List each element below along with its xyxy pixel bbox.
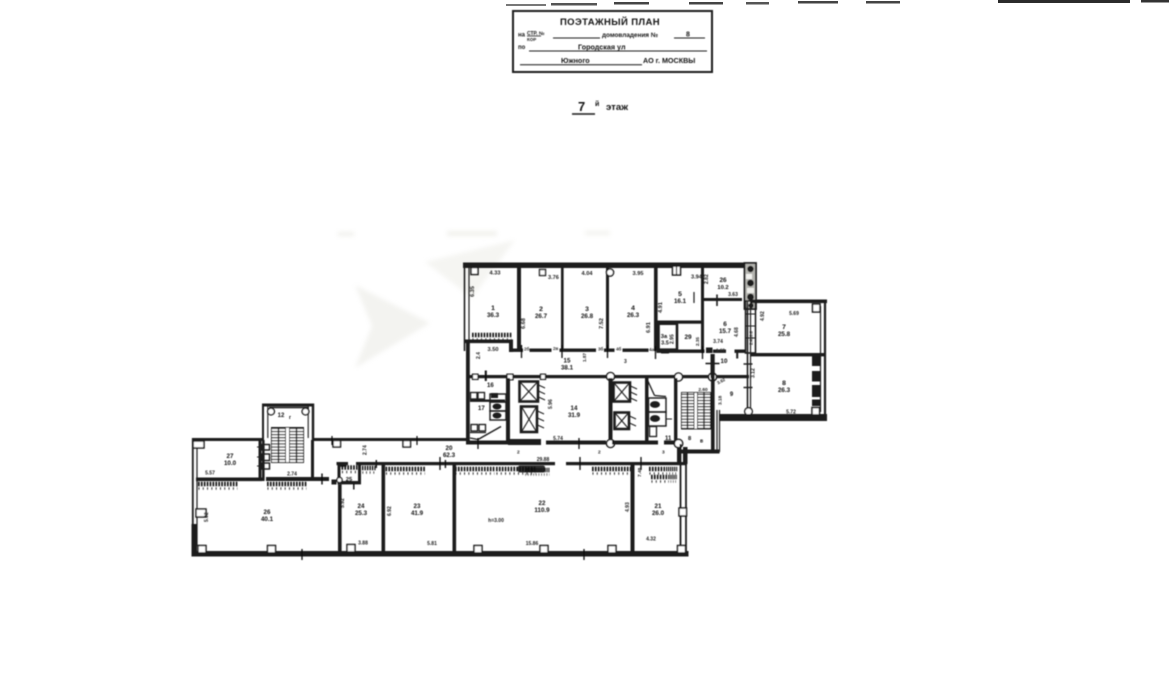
svg-text:29: 29 — [684, 334, 692, 341]
svg-text:4.68: 4.68 — [734, 327, 740, 337]
svg-text:3: 3 — [662, 450, 665, 456]
svg-text:1.87: 1.87 — [582, 353, 587, 362]
svg-text:10.0: 10.0 — [224, 460, 237, 467]
svg-text:6.91: 6.91 — [646, 322, 652, 333]
svg-text:7: 7 — [782, 324, 786, 331]
svg-text:4.32: 4.32 — [646, 537, 656, 543]
svg-text:26: 26 — [264, 509, 271, 516]
svg-text:Городская ул: Городская ул — [578, 43, 626, 52]
svg-text:2.74: 2.74 — [287, 472, 297, 478]
svg-text:г: г — [289, 415, 291, 421]
svg-text:в: в — [700, 439, 703, 445]
svg-text:h=3.00: h=3.00 — [488, 518, 504, 524]
svg-text:2: 2 — [539, 306, 543, 313]
svg-text:3.74: 3.74 — [713, 339, 723, 345]
svg-text:16: 16 — [487, 383, 494, 389]
svg-text:62.3: 62.3 — [443, 452, 456, 459]
svg-text:2.35: 2.35 — [695, 337, 700, 346]
svg-text:3.95: 3.95 — [633, 271, 644, 277]
svg-text:4.91: 4.91 — [658, 302, 664, 313]
svg-text:АО г. МОСКВЫ: АО г. МОСКВЫ — [643, 56, 695, 65]
svg-text:38.1: 38.1 — [561, 365, 574, 372]
svg-text:Южного: Южного — [561, 56, 590, 65]
svg-text:7.48: 7.48 — [637, 467, 643, 477]
svg-text:8: 8 — [686, 32, 690, 39]
svg-text:5.81: 5.81 — [427, 541, 437, 547]
svg-text:домовладения №: домовладения № — [602, 32, 658, 39]
svg-text:15.7: 15.7 — [719, 328, 732, 335]
svg-text:2.95: 2.95 — [670, 334, 676, 344]
svg-text:26.7: 26.7 — [535, 313, 548, 320]
svg-text:15: 15 — [564, 358, 571, 365]
svg-text:1.60: 1.60 — [716, 348, 725, 353]
svg-text:3б: 3б — [598, 346, 604, 352]
svg-text:24: 24 — [358, 503, 365, 510]
svg-text:36.3: 36.3 — [487, 312, 500, 319]
svg-text:4.33: 4.33 — [490, 271, 501, 277]
svg-text:26.3: 26.3 — [778, 387, 791, 394]
svg-text:26: 26 — [719, 277, 727, 284]
svg-text:этаж: этаж — [606, 102, 628, 113]
svg-text:110.9: 110.9 — [534, 507, 550, 514]
svg-text:6.68: 6.68 — [521, 318, 527, 329]
svg-text:10: 10 — [721, 358, 728, 365]
svg-text:14: 14 — [571, 405, 578, 412]
svg-text:2: 2 — [517, 450, 520, 456]
svg-text:12: 12 — [278, 413, 285, 419]
svg-text:10.2: 10.2 — [717, 285, 728, 291]
svg-text:6: 6 — [723, 321, 727, 328]
svg-text:26.3: 26.3 — [627, 312, 640, 319]
svg-text:31.9: 31.9 — [568, 412, 581, 419]
svg-text:4.04: 4.04 — [582, 271, 594, 277]
svg-text:7: 7 — [578, 99, 585, 114]
svg-text:2.4: 2.4 — [476, 352, 482, 359]
svg-text:25: 25 — [346, 477, 353, 483]
svg-text:6.35: 6.35 — [470, 286, 476, 297]
svg-text:4б: 4б — [616, 346, 622, 352]
svg-text:26.0: 26.0 — [652, 510, 665, 517]
svg-text:2.82: 2.82 — [704, 274, 710, 284]
svg-text:3.5: 3.5 — [661, 341, 669, 347]
svg-text:4.92: 4.92 — [760, 311, 766, 321]
svg-text:3.63: 3.63 — [728, 292, 738, 298]
svg-text:5.96: 5.96 — [548, 399, 554, 409]
svg-text:6.92: 6.92 — [387, 506, 393, 516]
svg-text:КОР: КОР — [527, 37, 536, 42]
svg-text:ПОЭТАЖНЫЙ ПЛАН: ПОЭТАЖНЫЙ ПЛАН — [560, 16, 660, 28]
svg-text:26.8: 26.8 — [581, 313, 594, 320]
svg-text:5.57: 5.57 — [205, 471, 215, 477]
svg-text:22: 22 — [539, 500, 546, 507]
svg-text:3.50: 3.50 — [488, 347, 499, 353]
svg-text:8: 8 — [782, 380, 786, 387]
svg-text:по: по — [518, 45, 526, 51]
svg-text:25.3: 25.3 — [355, 510, 368, 517]
svg-text:3.88: 3.88 — [358, 541, 368, 547]
svg-text:й: й — [595, 100, 599, 108]
svg-text:3: 3 — [585, 306, 589, 313]
svg-text:3.76: 3.76 — [548, 275, 559, 281]
svg-text:23: 23 — [414, 503, 421, 510]
svg-text:15.86: 15.86 — [526, 541, 539, 547]
svg-text:16.1: 16.1 — [674, 298, 687, 305]
svg-text:40.1: 40.1 — [261, 516, 274, 523]
svg-text:3: 3 — [624, 359, 627, 365]
svg-text:4: 4 — [631, 305, 635, 312]
svg-text:27: 27 — [227, 453, 234, 460]
svg-text:41.9: 41.9 — [411, 510, 424, 517]
svg-text:5.02: 5.02 — [204, 512, 210, 522]
svg-text:4.93: 4.93 — [625, 502, 631, 512]
svg-text:2.74: 2.74 — [363, 445, 369, 455]
svg-text:3.12: 3.12 — [751, 368, 757, 378]
svg-text:20: 20 — [446, 445, 453, 452]
svg-text:на: на — [518, 33, 526, 39]
svg-text:5.69: 5.69 — [789, 311, 799, 317]
svg-text:3.18: 3.18 — [718, 395, 724, 405]
svg-text:25.8: 25.8 — [778, 331, 791, 338]
svg-text:1: 1 — [491, 305, 495, 312]
svg-text:2: 2 — [598, 450, 601, 456]
svg-text:21: 21 — [655, 503, 662, 510]
svg-text:5: 5 — [678, 291, 682, 298]
svg-text:5.92: 5.92 — [340, 498, 346, 508]
svg-text:2.60: 2.60 — [698, 387, 708, 393]
svg-text:2б: 2б — [524, 346, 530, 352]
svg-text:2в: 2в — [553, 346, 559, 351]
svg-text:17: 17 — [478, 406, 485, 412]
svg-text:7.52: 7.52 — [599, 318, 605, 329]
svg-text:4а: 4а — [649, 347, 655, 352]
svg-text:3а: 3а — [661, 334, 668, 340]
